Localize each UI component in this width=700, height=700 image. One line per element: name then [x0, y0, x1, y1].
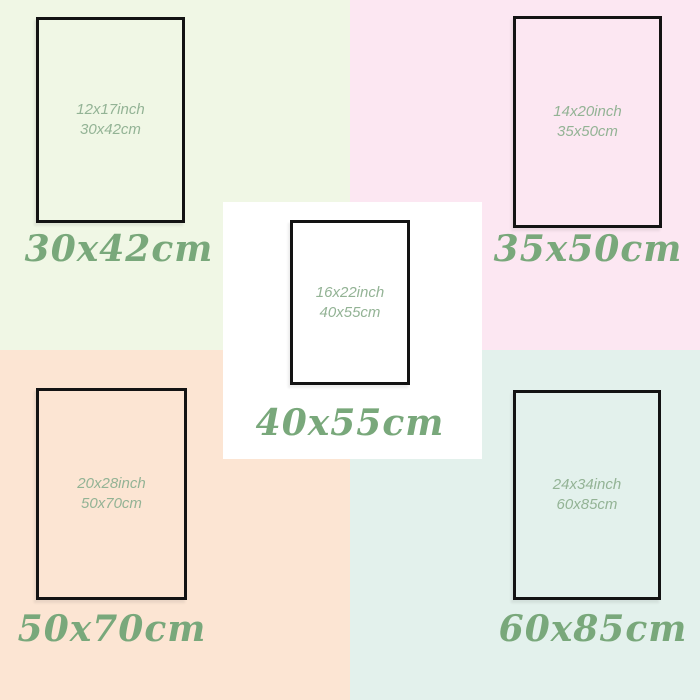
frame-size-inch: 20x28inch: [77, 474, 145, 494]
frame-size-inch: 14x20inch: [553, 102, 621, 122]
size-label-60x85cm: 60x85cm: [493, 608, 693, 650]
frame-size-inch: 16x22inch: [316, 283, 384, 303]
frame-size-text: 14x20inch 35x50cm: [553, 102, 621, 142]
frame-size-cm: 60x85cm: [553, 495, 621, 515]
size-label-50x70cm: 50x70cm: [12, 608, 212, 650]
size-chart-canvas: 12x17inch 30x42cm 30x42cm 14x20inch 35x5…: [0, 0, 700, 700]
frame-size-inch: 24x34inch: [553, 475, 621, 495]
frame-size-text: 24x34inch 60x85cm: [553, 475, 621, 515]
poster-frame-35x50cm: 14x20inch 35x50cm: [513, 16, 662, 228]
frame-size-text: 12x17inch 30x42cm: [76, 100, 144, 140]
frame-size-cm: 50x70cm: [77, 494, 145, 514]
frame-size-cm: 30x42cm: [76, 120, 144, 140]
frame-size-text: 20x28inch 50x70cm: [77, 474, 145, 514]
frame-size-text: 16x22inch 40x55cm: [316, 283, 384, 323]
poster-frame-60x85cm: 24x34inch 60x85cm: [513, 390, 661, 600]
frame-size-cm: 35x50cm: [553, 122, 621, 142]
poster-frame-40x55cm: 16x22inch 40x55cm: [290, 220, 410, 385]
poster-frame-30x42cm: 12x17inch 30x42cm: [36, 17, 185, 223]
poster-frame-50x70cm: 20x28inch 50x70cm: [36, 388, 187, 600]
frame-size-cm: 40x55cm: [316, 303, 384, 323]
size-label-40x55cm: 40x55cm: [250, 402, 450, 444]
size-label-35x50cm: 35x50cm: [488, 228, 688, 270]
size-label-30x42cm: 30x42cm: [19, 228, 219, 270]
frame-size-inch: 12x17inch: [76, 100, 144, 120]
